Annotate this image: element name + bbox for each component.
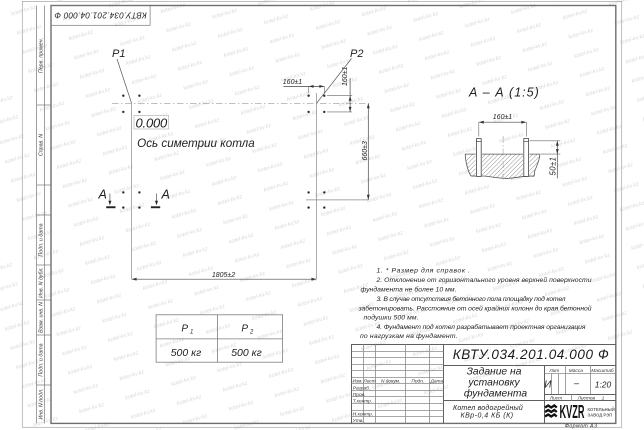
svg-text:160±1: 160±1	[283, 79, 303, 86]
svg-text:160±1: 160±1	[342, 66, 349, 86]
svg-text:Задание на: Задание на	[467, 367, 522, 378]
svg-text:КВр-0,4 КБ (К): КВр-0,4 КБ (К)	[460, 413, 513, 420]
svg-text:0.000: 0.000	[136, 116, 169, 131]
svg-text:Инв. N подл.: Инв. N подл.	[39, 389, 45, 420]
svg-text:ЗАВОД РЭП: ЗАВОД РЭП	[588, 412, 613, 417]
svg-text:А: А	[98, 187, 107, 201]
svg-text:Изм.: Изм.	[352, 378, 362, 384]
svg-text:500 кг: 500 кг	[231, 347, 262, 359]
svg-text:Пров.: Пров.	[353, 392, 366, 398]
svg-text:2. Отклонение от горизонтальн: 2. Отклонение от горизонтального уровня …	[376, 276, 592, 284]
svg-text:Р: Р	[181, 324, 188, 335]
svg-text:Подп. и дата: Подп. и дата	[39, 343, 45, 376]
svg-text:Т.контр.: Т.контр.	[353, 398, 372, 404]
svg-text:KVZR: KVZR	[560, 401, 585, 422]
svg-text:Подп. и дата: Подп. и дата	[39, 223, 45, 256]
svg-text:Инв. N дубл.: Инв. N дубл.	[39, 267, 45, 298]
svg-text:Н.контр.: Н.контр.	[353, 412, 373, 418]
svg-text:Справ. N: Справ. N	[39, 134, 45, 156]
svg-text:Подп.: Подп.	[411, 378, 424, 384]
svg-text:КВТУ.034.201.04.000 Ф: КВТУ.034.201.04.000 Ф	[453, 347, 610, 362]
svg-text:А: А	[161, 187, 170, 201]
svg-text:фундамента: фундамента	[464, 387, 528, 399]
svg-text:Взам. инв. N: Взам. инв. N	[39, 302, 45, 333]
svg-text:Масса: Масса	[569, 368, 584, 374]
svg-text:P1: P1	[112, 48, 125, 60]
svg-text:1. * Размер для справок .: 1. * Размер для справок .	[377, 266, 471, 274]
svg-text:забетонировать. Расстояние от: забетонировать. Расстояние от осей крайн…	[358, 304, 592, 312]
svg-text:1805±2: 1805±2	[212, 272, 235, 279]
svg-text:Лит: Лит	[548, 368, 559, 374]
svg-text:3. В случае отсутствия бетонн: 3. В случае отсутствия бетонного пола пл…	[377, 295, 566, 303]
svg-text:И: И	[544, 379, 552, 390]
svg-text:Формат А3: Формат А3	[565, 423, 598, 429]
svg-text:N докум.: N докум.	[381, 378, 400, 384]
svg-text:по нагрузкам на фундамент.: по нагрузкам на фундамент.	[360, 332, 458, 340]
svg-text:Масштаб: Масштаб	[591, 368, 614, 374]
svg-text:1: 1	[602, 395, 605, 401]
svg-text:Лист: Лист	[362, 378, 375, 384]
svg-text:установку: установку	[467, 378, 520, 389]
svg-text:2: 2	[249, 330, 254, 336]
svg-text:50±1: 50±1	[548, 157, 557, 176]
svg-text:А – А (1:5): А – А (1:5)	[468, 86, 540, 100]
svg-text:Перв. примен.: Перв. примен.	[39, 38, 45, 73]
svg-text:Котел водогрейный: Котел водогрейный	[453, 404, 523, 412]
svg-text:Р: Р	[241, 324, 248, 335]
svg-text:КОТЕЛЬНЫЙ: КОТЕЛЬНЫЙ	[588, 407, 615, 412]
svg-text:Разраб.: Разраб.	[353, 385, 370, 391]
svg-text:P2: P2	[350, 48, 363, 60]
svg-text:160±1: 160±1	[493, 114, 513, 121]
svg-text:660±3: 660±3	[362, 141, 369, 161]
svg-text:фундамента не более 10 мм.: фундамента не более 10 мм.	[361, 285, 457, 293]
svg-text:Утв.: Утв.	[353, 418, 364, 424]
svg-text:–: –	[573, 378, 580, 388]
svg-text:500 кг: 500 кг	[171, 347, 202, 359]
svg-text:Дата: Дата	[429, 378, 443, 384]
svg-text:КВТУ.034.201.04.000 Ф: КВТУ.034.201.04.000 Ф	[54, 10, 147, 19]
svg-text:1:20: 1:20	[595, 379, 612, 389]
svg-text:подушки 500 мм.: подушки 500 мм.	[364, 314, 419, 322]
svg-text:1: 1	[190, 330, 193, 336]
svg-text:Ось симетрии котла: Ось симетрии котла	[137, 138, 255, 150]
svg-text:4. Фундамент под котел разраб: 4. Фундамент под котел разрабатывает про…	[377, 323, 586, 331]
